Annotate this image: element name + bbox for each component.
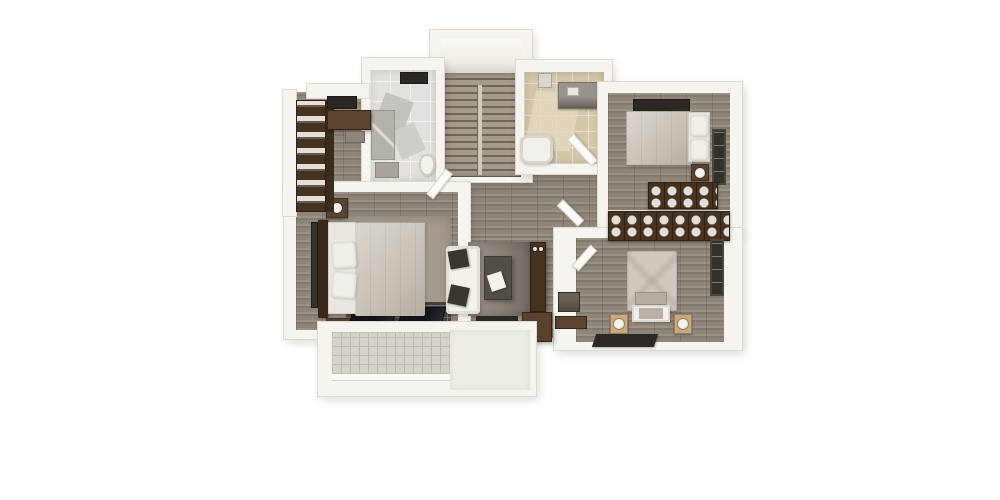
- nightstand-top-right: [691, 164, 709, 181]
- toilet-icon: [419, 154, 435, 176]
- bed-top-right-duvet: [626, 111, 692, 165]
- bedroom-bottom-right-window: [710, 239, 724, 296]
- sofa-cushion-1: [448, 248, 470, 269]
- cabinet-knob-icon: [539, 247, 543, 251]
- floor-plan: [283, 30, 741, 395]
- master-bed-duvet: [355, 222, 425, 316]
- stair-handrail: [477, 85, 482, 175]
- stair-landing: [441, 39, 521, 73]
- bathroom-left-skylight: [400, 72, 428, 84]
- bedroom-bottom-right-rug: [592, 334, 658, 347]
- cubby-wardrobe-top-right: [648, 182, 718, 209]
- bed-bottom-right-pillows: [635, 292, 667, 305]
- vanity-basin: [567, 87, 579, 96]
- bathroom-right-vanity: [558, 82, 600, 109]
- sofa-cushion-2: [447, 284, 470, 307]
- master-pillow-2: [331, 271, 357, 299]
- nightstand-bottom-left: [610, 314, 628, 334]
- master-pillow-1: [331, 241, 357, 269]
- master-headboard: [318, 220, 328, 318]
- balcony-plain-floor: [450, 330, 530, 390]
- storage-box: [345, 131, 365, 143]
- linen-shelves: [296, 100, 326, 212]
- nightstand-bottom-right: [674, 314, 692, 334]
- wardrobe-cabinet: [327, 110, 371, 130]
- cabinet-knob-icon: [533, 247, 537, 251]
- tall-cabinet: [530, 242, 546, 312]
- cubby-wardrobe-bottom-right: [608, 211, 730, 241]
- shower: [371, 110, 395, 160]
- bathroom-right-sink: [538, 73, 552, 88]
- dresser: [558, 292, 580, 312]
- master-left-windows: [311, 222, 318, 308]
- sideboard-bottom-right: [555, 316, 587, 329]
- closet-skylight: [327, 96, 357, 109]
- bedroom-top-right-window: [712, 129, 726, 185]
- closet-outer-wall: [283, 90, 296, 216]
- bathroom-left-vanity: [375, 162, 399, 178]
- bathtub: [520, 135, 553, 164]
- balcony-tiled-floor: [332, 332, 450, 374]
- bed-top-right-pillow-1: [690, 115, 708, 136]
- lamp-icon: [695, 168, 705, 178]
- bed-top-right-pillow-2: [690, 139, 708, 160]
- floorplan-canvas: [0, 0, 1000, 500]
- lamp-icon: [678, 319, 688, 329]
- bench-cushion: [639, 308, 663, 319]
- balcony-railing: [332, 374, 450, 380]
- lamp-icon: [614, 319, 624, 329]
